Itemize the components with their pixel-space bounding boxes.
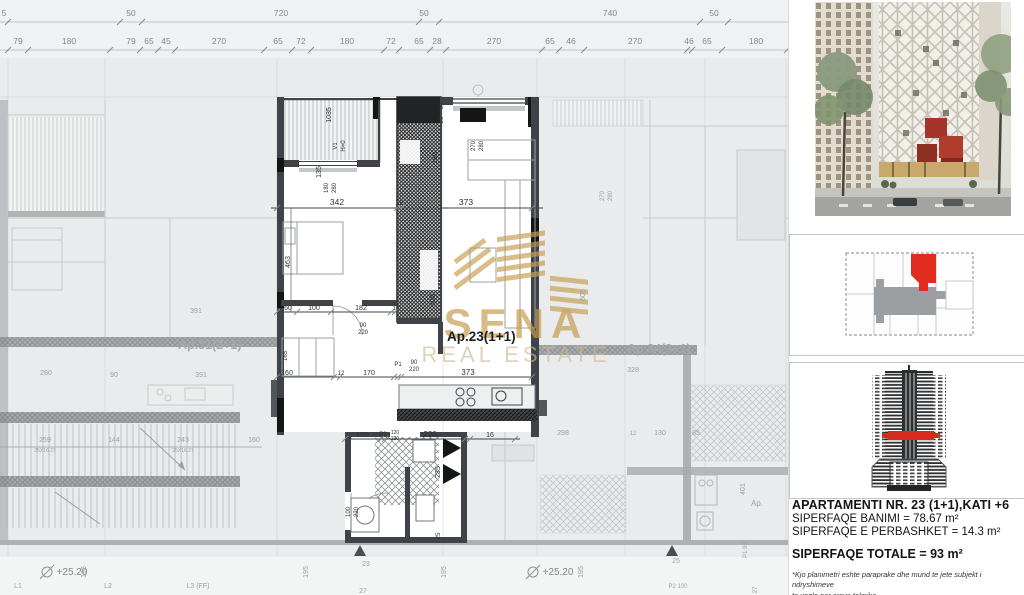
column-block bbox=[460, 108, 486, 122]
dim-label: 20 bbox=[439, 116, 445, 123]
floor-plan: SENA REAL ESTATE Ap.23(1+1) Ap.31(2+1) A… bbox=[0, 0, 788, 595]
dim-label: 195 bbox=[303, 566, 310, 578]
dim-label: 220 bbox=[354, 506, 360, 517]
dim-label: 120 bbox=[356, 432, 368, 439]
disclaimer-note: *Kjo planimetri eshte paraprake dhe mund… bbox=[792, 570, 1022, 595]
dim-label: 72 bbox=[386, 36, 396, 46]
neighbor-right-label: Ap.24(3+1) bbox=[627, 342, 691, 356]
dim-label: 220 bbox=[358, 330, 369, 336]
dim-label: 90 bbox=[110, 372, 118, 379]
dim-label: 280 bbox=[608, 190, 614, 201]
key-plan-box bbox=[789, 234, 1024, 356]
floor-plan-drawing: SENA REAL ESTATE Ap.23(1+1) Ap.31(2+1) A… bbox=[0, 0, 788, 595]
dim-label: 100 bbox=[308, 305, 320, 312]
dim-label: 130 bbox=[654, 430, 666, 437]
dim-label: 280 bbox=[332, 182, 338, 193]
dim-label: 90 bbox=[360, 323, 367, 329]
car bbox=[893, 198, 917, 206]
dim-label: 60 bbox=[284, 305, 292, 312]
dim-label: 298 bbox=[557, 430, 569, 437]
dim-label: 270 bbox=[212, 36, 226, 46]
apartment-label: Ap.23(1+1) bbox=[447, 329, 516, 344]
dim-label: 165 bbox=[283, 350, 289, 361]
key-plan-unit-right bbox=[946, 281, 973, 309]
highlight-floor-band bbox=[888, 431, 934, 440]
dim-label: 85 bbox=[692, 430, 700, 437]
dim-label: 65 bbox=[144, 36, 154, 46]
dim-label: 182 bbox=[355, 305, 367, 312]
total-area: SIPERFAQE TOTALE = 93 m² bbox=[792, 547, 1022, 561]
toilet bbox=[416, 495, 434, 521]
dim-label: 23 bbox=[362, 561, 370, 568]
dim-label: 740 bbox=[603, 8, 617, 18]
dim-label: P1 90 bbox=[743, 542, 749, 558]
dim-label: 220 bbox=[409, 367, 420, 373]
dim-label: 27 bbox=[753, 586, 759, 593]
dim-label: 328 bbox=[627, 367, 639, 374]
dim-label: 373 bbox=[461, 368, 475, 377]
dim-label: 280 bbox=[40, 370, 52, 377]
dim-label: 180 bbox=[340, 36, 354, 46]
dim-label: 65 bbox=[273, 36, 283, 46]
dim-label: L1 bbox=[14, 583, 22, 590]
dim-label: 16 bbox=[486, 432, 494, 439]
level-value: +25.20 bbox=[543, 567, 574, 578]
dim-label: 180 bbox=[749, 36, 763, 46]
dim-label: H=0 bbox=[341, 140, 347, 152]
dim-label: 65 bbox=[545, 36, 555, 46]
dim-label: 270 bbox=[628, 36, 642, 46]
dim-label: 401 bbox=[740, 483, 747, 495]
side-panel: APARTAMENTI NR. 23 (1+1),KATI +6 SIPERFA… bbox=[788, 0, 1024, 595]
dim-label: 373 bbox=[459, 197, 473, 207]
dim-label: 28 bbox=[432, 36, 442, 46]
dim-label: 270 bbox=[471, 140, 477, 151]
watermark-tagline: REAL ESTATE bbox=[421, 342, 610, 367]
dim-label: 25 bbox=[436, 532, 442, 539]
dim-label: 280 bbox=[479, 140, 485, 151]
dim-label: 160 bbox=[248, 437, 260, 444]
dim-label: 46 bbox=[684, 36, 694, 46]
dim-label: 720 bbox=[274, 8, 288, 18]
dim-label: 605 bbox=[580, 289, 587, 301]
dim-label: 144 bbox=[108, 437, 120, 444]
dim-label: 27 bbox=[359, 588, 367, 595]
dim-label: 270 bbox=[600, 190, 606, 201]
dim-label: 65 bbox=[414, 36, 424, 46]
floorplan-sheet: SENA REAL ESTATE Ap.23(1+1) Ap.31(2+1) A… bbox=[0, 0, 1024, 595]
dim-label: 220 bbox=[391, 436, 400, 442]
dim-label: L3 (FF) bbox=[187, 583, 210, 590]
dim-label: 342 bbox=[330, 197, 344, 207]
dim-label: 259 bbox=[39, 437, 51, 444]
dim-label: P1 bbox=[394, 362, 402, 368]
dim-label: 65 bbox=[702, 36, 712, 46]
dim-label: P2 100 bbox=[668, 584, 688, 590]
tower-elevation bbox=[872, 365, 946, 491]
dim-label: 79 bbox=[126, 36, 136, 46]
dim-label: 25 bbox=[672, 558, 680, 565]
dim-label: 12 bbox=[630, 431, 637, 437]
apartment-title: APARTAMENTI NR. 23 (1+1),KATI +6 bbox=[792, 498, 1022, 512]
dim-label: 180 bbox=[324, 182, 330, 193]
car bbox=[943, 199, 963, 206]
dim-label: 270 bbox=[487, 36, 501, 46]
dim-label: 45 bbox=[161, 36, 171, 46]
dim-label: 160 bbox=[281, 370, 293, 377]
dim-label: 90 bbox=[411, 360, 418, 366]
dim-label: 5 bbox=[2, 8, 7, 18]
dim-label: 25X16.27 bbox=[34, 448, 56, 454]
dim-label: 391 bbox=[195, 372, 207, 379]
dim-label: 235 bbox=[435, 466, 442, 478]
apartment-info: APARTAMENTI NR. 23 (1+1),KATI +6 SIPERFA… bbox=[792, 498, 1022, 595]
dim-label: L2 bbox=[104, 583, 112, 590]
dim-label: 195 bbox=[578, 566, 585, 578]
dim-label: 50 bbox=[439, 102, 445, 109]
dim-label: Ap. bbox=[751, 499, 763, 508]
dim-label: 605 bbox=[430, 294, 437, 306]
dim-label: 79 bbox=[13, 36, 23, 46]
dim-label: V1 bbox=[333, 142, 339, 150]
dim-label: 50 bbox=[419, 8, 429, 18]
dim-label: 25X16.27 bbox=[172, 448, 194, 454]
storefront bbox=[879, 162, 979, 177]
dim-label: 72 bbox=[296, 36, 306, 46]
neighbor-left-label: Ap.31(2+1) bbox=[178, 338, 242, 352]
dim-label: 463 bbox=[285, 256, 292, 268]
dim-label: 100 bbox=[346, 506, 352, 517]
dim-label: 135 bbox=[316, 166, 323, 178]
dim-label: 243 bbox=[177, 437, 189, 444]
shared-area: SIPERFAQE E PERBASHKET = 14.3 m² bbox=[792, 526, 1022, 538]
building-render bbox=[815, 2, 1011, 216]
dim-label: 1035 bbox=[326, 107, 333, 123]
living-area: SIPERFAQE BANIMI = 78.67 m² bbox=[792, 513, 1022, 525]
dim-label: 195 bbox=[441, 566, 448, 578]
elevation-box bbox=[789, 362, 1024, 499]
dim-label: 50 bbox=[709, 8, 719, 18]
dim-label: 180 bbox=[432, 152, 439, 164]
dim-label: 220 bbox=[423, 430, 437, 439]
dim-label: 180 bbox=[62, 36, 76, 46]
dim-label: 170 bbox=[363, 370, 375, 377]
dim-label: 46 bbox=[566, 36, 576, 46]
level-value: +25.20 bbox=[57, 567, 88, 578]
dim-label: 50 bbox=[126, 8, 136, 18]
dim-label: 391 bbox=[190, 308, 202, 315]
